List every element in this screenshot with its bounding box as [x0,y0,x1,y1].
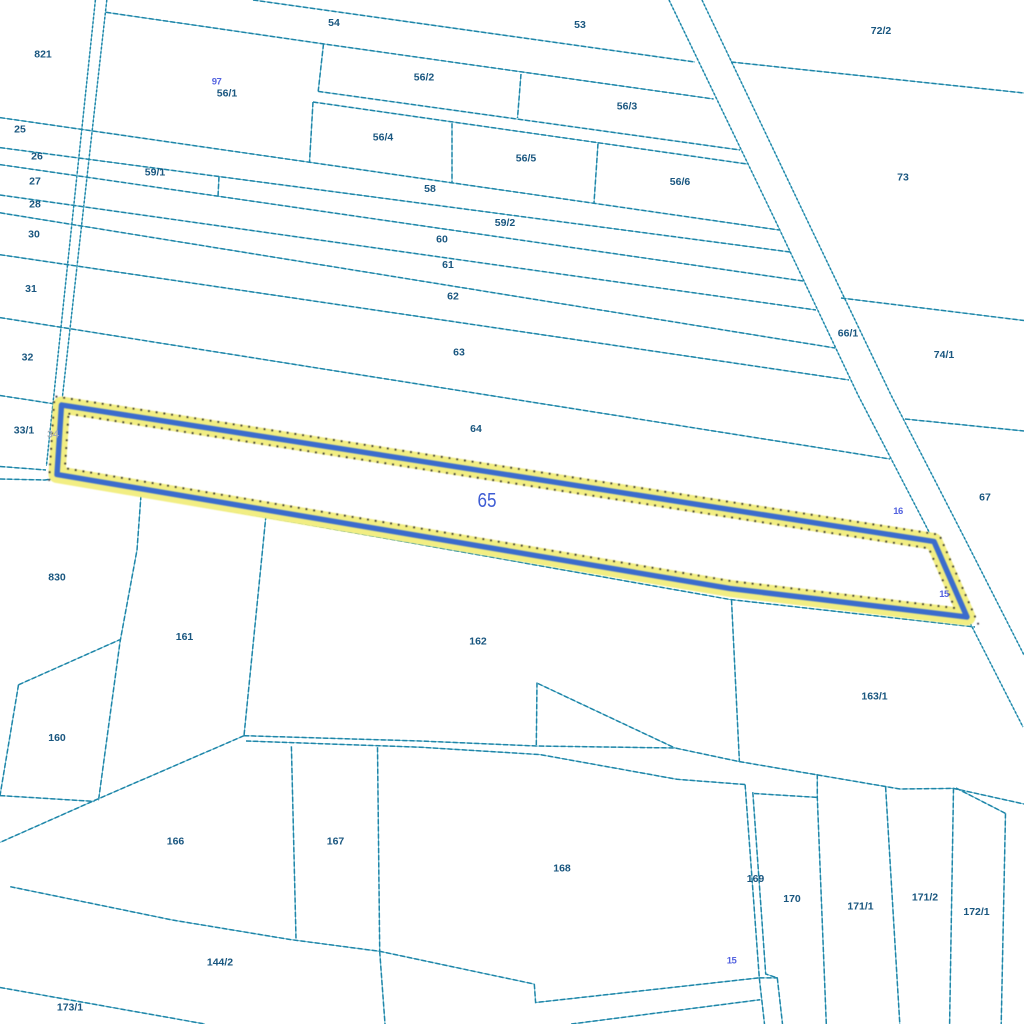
svg-text:59/2: 59/2 [495,217,516,229]
svg-text:171/2: 171/2 [912,892,938,904]
svg-text:32: 32 [22,352,34,364]
svg-text:27: 27 [29,176,41,188]
svg-text:62: 62 [447,291,459,303]
svg-text:821: 821 [34,49,52,61]
svg-text:56/3: 56/3 [617,101,638,113]
svg-text:34: 34 [47,429,59,441]
svg-text:58: 58 [424,183,436,195]
svg-text:56/1: 56/1 [217,88,238,100]
svg-text:56/4: 56/4 [373,132,394,144]
svg-text:163/1: 163/1 [861,691,887,703]
svg-text:162: 162 [469,636,487,648]
svg-text:31: 31 [25,283,37,295]
svg-text:26: 26 [31,151,43,163]
svg-text:73: 73 [897,172,909,184]
svg-text:830: 830 [48,572,66,584]
svg-text:72/2: 72/2 [871,25,892,37]
svg-text:169: 169 [747,873,765,885]
svg-text:171/1: 171/1 [847,901,873,913]
svg-text:61: 61 [442,259,454,271]
svg-text:64: 64 [470,423,482,435]
svg-text:170: 170 [783,893,801,905]
svg-text:25: 25 [14,124,26,136]
svg-text:16: 16 [893,506,903,517]
svg-text:28: 28 [29,199,41,211]
svg-text:30: 30 [28,229,40,241]
svg-text:161: 161 [176,631,194,643]
svg-text:15: 15 [727,956,738,967]
svg-text:56/2: 56/2 [414,72,435,84]
svg-text:168: 168 [553,863,571,875]
svg-text:60: 60 [436,234,448,246]
svg-text:63: 63 [453,347,465,359]
svg-text:74/1: 74/1 [934,349,955,361]
svg-text:59/1: 59/1 [145,167,166,179]
svg-text:144/2: 144/2 [207,957,233,969]
svg-text:56/5: 56/5 [516,153,537,165]
svg-text:54: 54 [328,17,340,29]
svg-text:56/6: 56/6 [670,176,691,188]
svg-text:160: 160 [48,732,66,744]
svg-text:97: 97 [212,77,222,88]
svg-text:33/1: 33/1 [14,425,35,437]
svg-text:173/1: 173/1 [57,1002,83,1014]
svg-text:172/1: 172/1 [963,906,989,918]
svg-text:15: 15 [939,589,950,600]
svg-text:166: 166 [167,836,185,848]
svg-text:67: 67 [979,492,991,504]
svg-text:65: 65 [478,490,497,512]
svg-text:66/1: 66/1 [838,328,859,340]
svg-text:167: 167 [327,836,345,848]
svg-text:53: 53 [574,19,586,31]
